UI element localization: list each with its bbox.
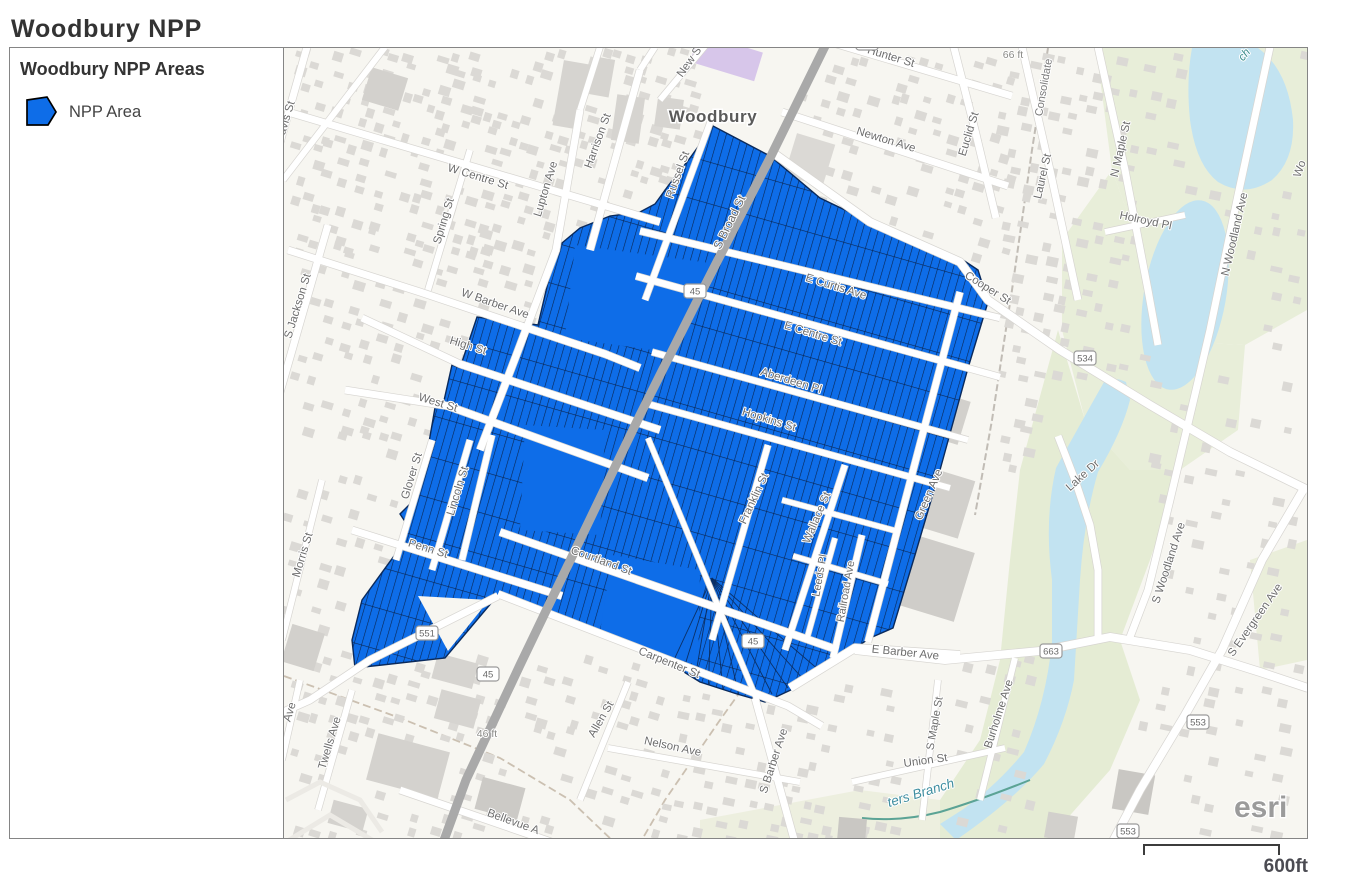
- svg-text:esri: esri: [1234, 791, 1287, 824]
- svg-text:553: 553: [1120, 827, 1136, 838]
- svg-text:Woodbury: Woodbury: [669, 107, 758, 126]
- svg-text:551: 551: [419, 629, 435, 640]
- svg-text:66 ft: 66 ft: [1003, 49, 1024, 61]
- svg-text:45: 45: [748, 637, 759, 648]
- svg-text:45: 45: [690, 287, 701, 298]
- svg-text:534: 534: [1077, 354, 1093, 365]
- svg-text:46 ft: 46 ft: [477, 728, 498, 740]
- svg-text:663: 663: [1043, 647, 1059, 658]
- svg-text:45: 45: [483, 670, 494, 681]
- svg-text:553: 553: [1190, 718, 1206, 729]
- svg-text:534: 534: [859, 48, 875, 50]
